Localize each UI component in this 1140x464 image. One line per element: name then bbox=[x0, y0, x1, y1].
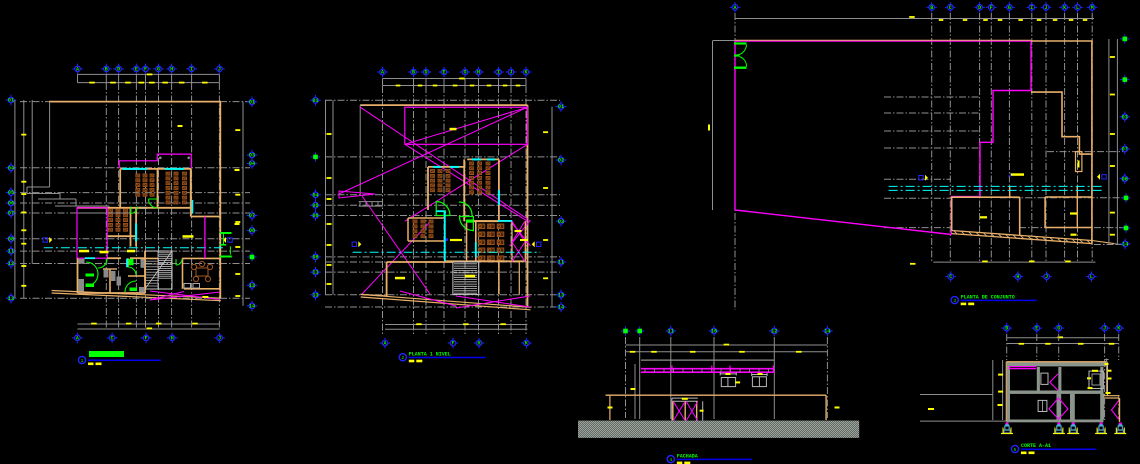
svg-text:J: J bbox=[509, 70, 512, 76]
svg-text:5: 5 bbox=[1014, 447, 1017, 453]
svg-text:A: A bbox=[383, 341, 386, 347]
svg-text:12: 12 bbox=[8, 261, 14, 267]
svg-text:F: F bbox=[451, 341, 454, 347]
svg-text:B: B bbox=[930, 5, 933, 11]
svg-text:A: A bbox=[381, 70, 384, 76]
svg-text:14: 14 bbox=[824, 329, 830, 335]
svg-text:J: J bbox=[1044, 5, 1047, 11]
svg-text:I: I bbox=[1030, 5, 1033, 11]
svg-text:11: 11 bbox=[558, 260, 564, 266]
svg-text:L: L bbox=[1076, 5, 1079, 11]
svg-text:J: J bbox=[218, 67, 221, 73]
svg-text:F: F bbox=[145, 336, 148, 342]
svg-text:13: 13 bbox=[312, 292, 318, 298]
svg-text:3: 3 bbox=[953, 298, 956, 304]
svg-text:08: 08 bbox=[249, 228, 255, 234]
svg-text:B: B bbox=[105, 67, 108, 73]
svg-text:E: E bbox=[442, 70, 445, 76]
svg-text:M: M bbox=[1091, 5, 1094, 11]
svg-text:01: 01 bbox=[249, 99, 255, 105]
svg-text:G: G bbox=[1057, 326, 1060, 332]
svg-text:11: 11 bbox=[668, 329, 674, 335]
svg-text:G: G bbox=[463, 70, 466, 76]
svg-text:A: A bbox=[76, 67, 79, 73]
svg-text:J: J bbox=[1045, 274, 1048, 280]
svg-text:K: K bbox=[525, 341, 528, 347]
svg-text:13: 13 bbox=[558, 292, 564, 298]
svg-text:CORTE A-A1: CORTE A-A1 bbox=[1021, 443, 1051, 449]
svg-text:13: 13 bbox=[249, 283, 255, 289]
svg-text:03: 03 bbox=[1122, 114, 1128, 120]
svg-text:13: 13 bbox=[8, 296, 14, 302]
svg-text:H: H bbox=[1016, 274, 1019, 280]
svg-text:G: G bbox=[157, 67, 160, 73]
svg-text:08: 08 bbox=[312, 255, 318, 261]
svg-text:B: B bbox=[1005, 326, 1008, 332]
svg-text:04: 04 bbox=[249, 161, 255, 167]
svg-text:04: 04 bbox=[312, 192, 318, 198]
svg-text:14: 14 bbox=[558, 305, 564, 311]
svg-text:D: D bbox=[978, 5, 981, 11]
svg-text:E: E bbox=[1035, 326, 1038, 332]
svg-text:01: 01 bbox=[8, 98, 14, 104]
svg-text:07: 07 bbox=[249, 213, 255, 219]
svg-text:L: L bbox=[1090, 274, 1093, 280]
svg-text:08: 08 bbox=[1122, 176, 1128, 182]
svg-text:12: 12 bbox=[771, 329, 777, 335]
svg-text:07: 07 bbox=[8, 211, 14, 217]
svg-text:E: E bbox=[135, 67, 138, 73]
svg-text:07: 07 bbox=[1122, 147, 1128, 153]
svg-text:06: 06 bbox=[8, 201, 14, 207]
svg-text:11: 11 bbox=[312, 270, 318, 276]
svg-text:H: H bbox=[171, 336, 174, 342]
svg-text:14: 14 bbox=[249, 304, 255, 310]
svg-text:H: H bbox=[170, 67, 173, 73]
svg-text:G: G bbox=[1008, 5, 1011, 11]
svg-text:B: B bbox=[412, 70, 415, 76]
svg-text:08: 08 bbox=[8, 236, 14, 242]
svg-text:FACHADA: FACHADA bbox=[677, 453, 698, 459]
svg-text:H: H bbox=[477, 341, 480, 347]
svg-text:04: 04 bbox=[8, 165, 14, 171]
svg-text:06: 06 bbox=[312, 213, 318, 219]
svg-text:J: J bbox=[1103, 326, 1106, 332]
svg-text:K: K bbox=[1117, 326, 1120, 332]
svg-text:05: 05 bbox=[312, 203, 318, 209]
svg-text:11: 11 bbox=[8, 249, 14, 255]
svg-text:C: C bbox=[949, 5, 952, 11]
svg-text:2: 2 bbox=[401, 355, 404, 361]
svg-text:A: A bbox=[76, 336, 79, 342]
svg-text:H: H bbox=[477, 70, 480, 76]
svg-text:16: 16 bbox=[711, 329, 717, 335]
svg-text:02: 02 bbox=[558, 158, 564, 164]
svg-text:PLANTA DE CONJUNTO: PLANTA DE CONJUNTO bbox=[961, 294, 1015, 300]
svg-text:C: C bbox=[949, 274, 952, 280]
svg-text:F: F bbox=[990, 5, 993, 11]
svg-text:4: 4 bbox=[669, 457, 672, 463]
svg-text:I: I bbox=[497, 70, 500, 76]
svg-text:D: D bbox=[117, 67, 120, 73]
svg-text:C: C bbox=[111, 336, 114, 342]
svg-text:01: 01 bbox=[558, 104, 564, 110]
svg-text:I: I bbox=[190, 67, 193, 73]
svg-text:A: A bbox=[733, 5, 736, 11]
svg-text:K: K bbox=[524, 70, 527, 76]
svg-text:14: 14 bbox=[1122, 242, 1128, 248]
svg-text:03: 03 bbox=[249, 153, 255, 159]
svg-text:F: F bbox=[144, 67, 147, 73]
svg-text:K: K bbox=[1063, 5, 1066, 11]
svg-text:01: 01 bbox=[312, 98, 318, 104]
svg-text:05: 05 bbox=[8, 190, 14, 196]
svg-text:PLANTA 1 NIVEL: PLANTA 1 NIVEL bbox=[409, 351, 451, 357]
svg-text:1: 1 bbox=[81, 358, 84, 364]
svg-text:D: D bbox=[424, 70, 427, 76]
svg-text:J: J bbox=[218, 336, 221, 342]
svg-text:03: 03 bbox=[558, 219, 564, 225]
